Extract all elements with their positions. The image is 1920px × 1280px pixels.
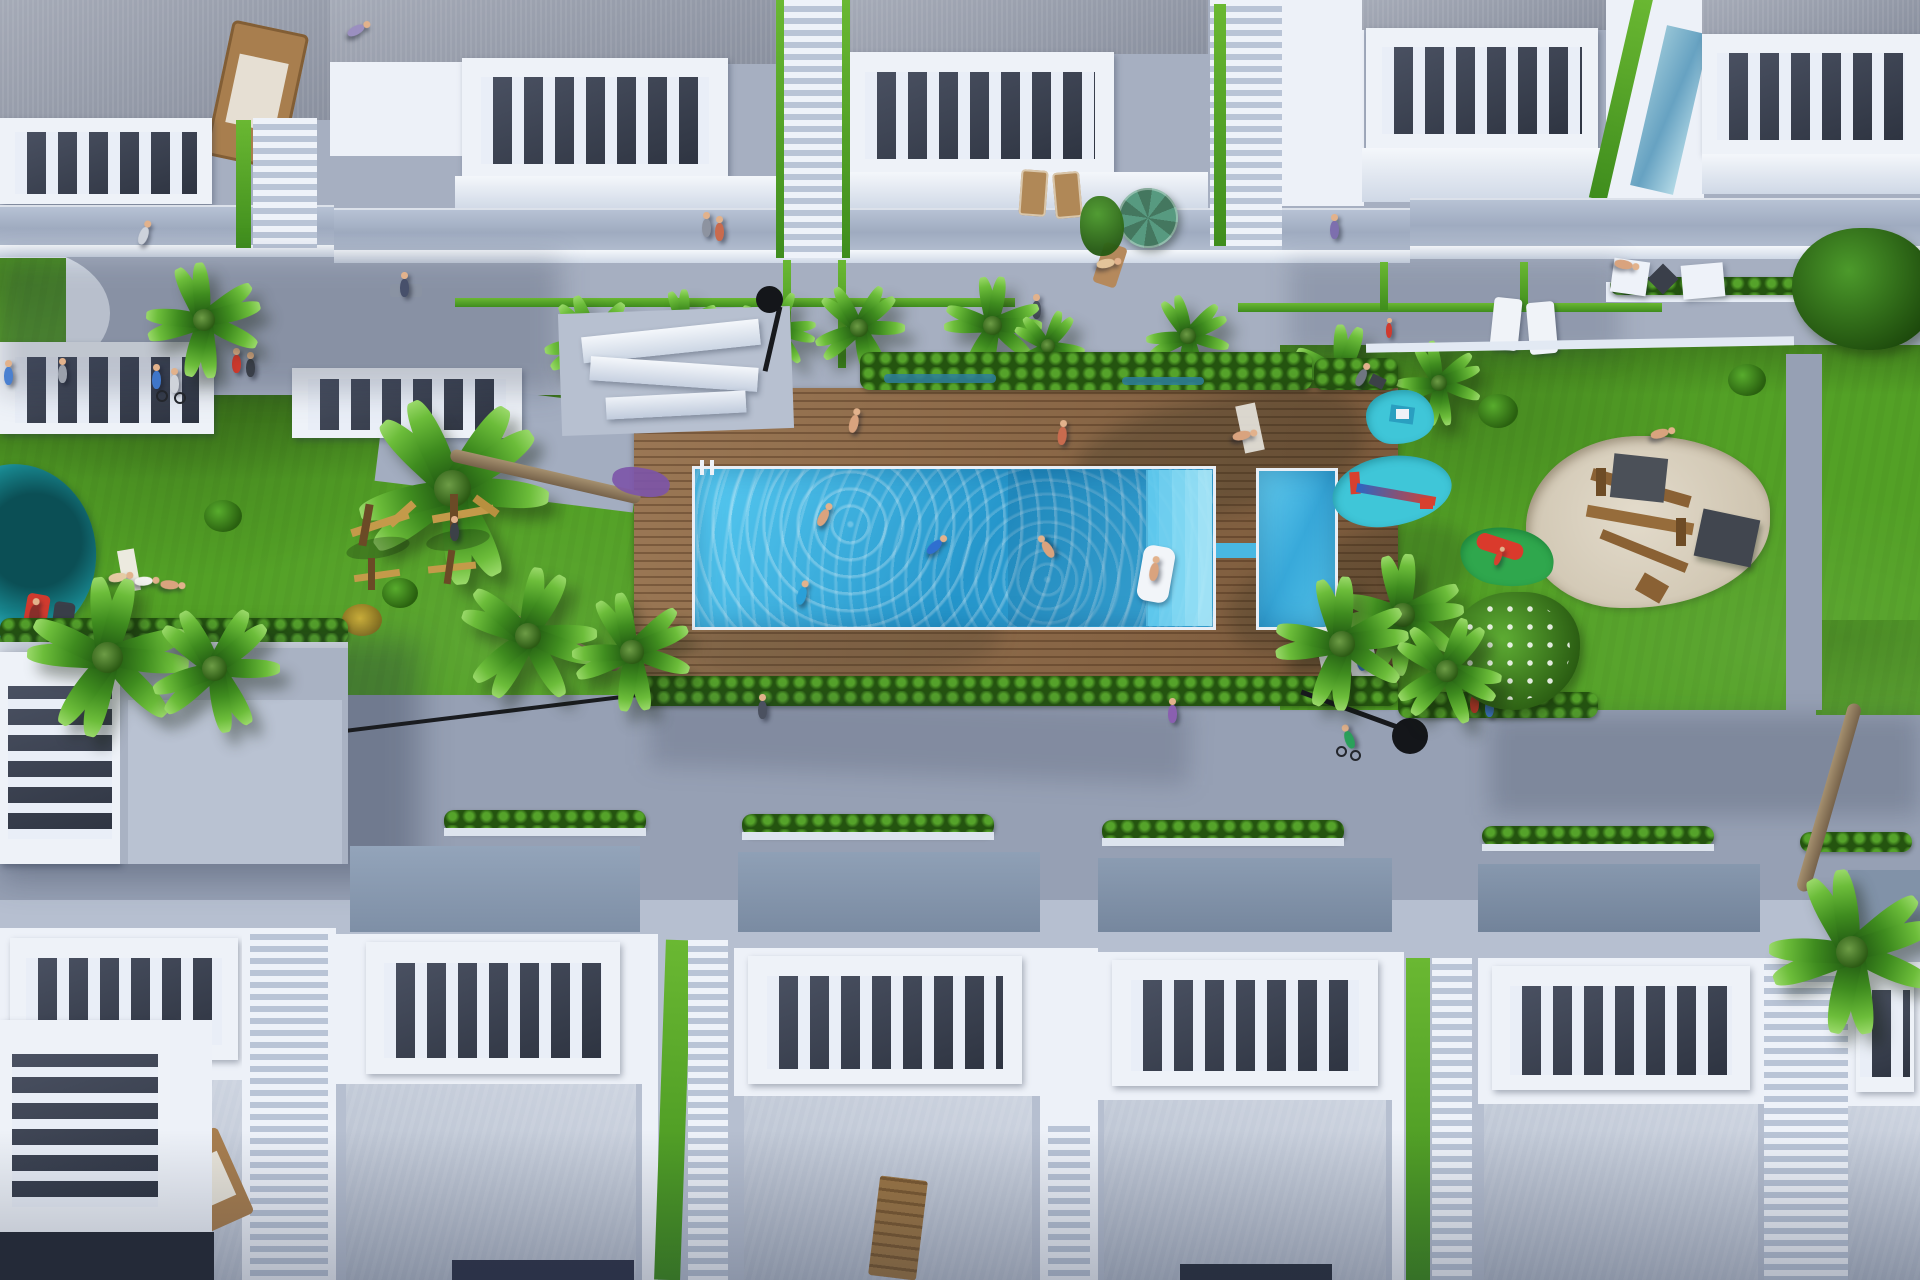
- person-on-float-body: [1148, 562, 1160, 582]
- patio-glass-2: [738, 852, 1040, 932]
- terrace-d: [846, 52, 1114, 174]
- house-2-terrace-slats: [384, 963, 602, 1058]
- person-lawn-edge-2-body: [58, 365, 67, 384]
- patio-glass-1: [350, 846, 640, 932]
- lounger-walkway-1: [1018, 169, 1048, 217]
- palm-road-left-2: [152, 606, 277, 731]
- person-walkway-3-body: [715, 223, 724, 242]
- aerial-residential-render: [0, 0, 1920, 1280]
- planter-wall-5: [1482, 844, 1714, 851]
- person-road-2-body: [1168, 705, 1177, 724]
- person-deck-walk-head: [1060, 420, 1067, 428]
- person-on-bench-head: [401, 272, 408, 279]
- person-deck-2-body: [847, 414, 860, 434]
- person-under-umbrella-body: [1095, 257, 1115, 269]
- bush-sand-edge: [1478, 394, 1518, 428]
- planter-wall-2: [444, 828, 646, 836]
- stair-cd-green-l: [776, 0, 784, 258]
- person-sand-lying-body: [1649, 427, 1669, 440]
- roof-f: [1362, 0, 1608, 30]
- path-right: [1786, 354, 1822, 710]
- person-walkway-4-head: [1331, 214, 1338, 221]
- planter-wall-3: [742, 832, 994, 840]
- person-on-float-head: [1152, 556, 1160, 564]
- stair-e-green: [1214, 4, 1226, 246]
- person-on-bench-body: [400, 279, 409, 298]
- terrace-h: [1702, 34, 1920, 154]
- person-walkway-2-body: [702, 219, 711, 238]
- person-under-umbrella-head: [1114, 258, 1122, 266]
- person-on-bench: [398, 272, 411, 298]
- fascia-h: [1702, 154, 1920, 194]
- person-deck-walk-body: [1057, 426, 1068, 446]
- terrace-h-slats: [1717, 53, 1905, 139]
- person-at-gym-body: [450, 523, 459, 542]
- pool-ladder-2: [710, 460, 714, 475]
- stair-cd-green-r: [842, 0, 850, 258]
- person-bike-2-body: [170, 375, 179, 394]
- terrace-a1: [0, 118, 212, 204]
- wall-f: [1282, 0, 1364, 206]
- palm-road-right-2-crown: [1436, 660, 1457, 681]
- roof-d: [846, 0, 1208, 54]
- person-deck-walk: [1055, 419, 1071, 446]
- palm-road-right-1-crown: [1329, 631, 1355, 657]
- person-deck-2-head: [853, 408, 861, 416]
- person-on-cubes-head: [1632, 263, 1640, 271]
- ivy-plant: [1080, 196, 1124, 256]
- plaza-shadow-left: [0, 258, 560, 393]
- lamp-plaza-head: [756, 286, 783, 313]
- terrace-c: [462, 58, 728, 178]
- person-road-1-head: [759, 694, 766, 701]
- planter-wall-4: [1102, 838, 1344, 846]
- page: { "canvas": {"w": 1920, "h": 1280}, "pal…: [0, 0, 1920, 1280]
- flowers-yellow: [342, 604, 382, 636]
- slab-c: [330, 62, 464, 156]
- bush-lawn-2: [382, 578, 418, 608]
- pool-dark-overlay: [1008, 470, 1148, 626]
- person-walkway-2-head: [703, 212, 710, 219]
- swimmer-4-head: [801, 580, 809, 589]
- pool-ladder-1: [700, 460, 704, 475]
- person-walkway-2: [700, 212, 713, 238]
- planter-hedge-5: [1482, 826, 1714, 846]
- palm-road-left-1-crown: [92, 642, 123, 673]
- terrace-a1-slats: [15, 132, 197, 194]
- fascia-c: [455, 176, 782, 210]
- bush-lawn-1: [204, 500, 242, 532]
- splash-toy-seat: [1396, 409, 1409, 419]
- person-walkway-3-head: [716, 216, 723, 223]
- palm-corner-br-crown: [1836, 936, 1868, 968]
- house-2-terrace: [366, 942, 620, 1074]
- stair-a-green: [236, 120, 251, 248]
- stair-a: [253, 118, 317, 248]
- hedge-deck-top: [860, 352, 1312, 390]
- pool-step-5: [1198, 470, 1212, 626]
- terrace-c-slats: [481, 77, 710, 163]
- roof-h: [1702, 0, 1920, 36]
- person-child-red-head: [1387, 318, 1392, 323]
- pool-step-4: [1185, 470, 1198, 626]
- person-road-2: [1166, 698, 1179, 724]
- swimmer-4-body: [795, 586, 809, 606]
- person-lawn-edge-2: [56, 358, 69, 384]
- fascia-f: [1362, 148, 1608, 202]
- curb-v-3: [1380, 262, 1388, 310]
- person-walkway-4: [1328, 214, 1341, 240]
- palm-road-right-1: [1278, 580, 1406, 708]
- bike-wheel-2: [174, 392, 186, 404]
- person-road-1: [756, 694, 769, 720]
- house-5-terrace: [1492, 966, 1750, 1090]
- house-4-terrace-slats: [1131, 980, 1360, 1071]
- bush-right-1: [1728, 364, 1766, 396]
- palm-lawn-topleft: [148, 264, 260, 376]
- cube-seat-2: [1681, 262, 1726, 300]
- person-lawn-edge-1-body: [4, 367, 13, 386]
- person-sand-lying-head: [1668, 427, 1676, 435]
- person-at-gym: [448, 516, 461, 542]
- play-post-2: [1676, 518, 1686, 546]
- curb-h-right: [1238, 303, 1662, 312]
- roof-c: [330, 0, 782, 64]
- palm-plaza-5-crown: [983, 316, 1002, 335]
- person-road-2-head: [1169, 698, 1176, 705]
- palm-road-left-2-crown: [202, 656, 227, 681]
- pool-connector: [1216, 543, 1258, 558]
- vignette-bottom: [0, 1130, 1920, 1280]
- play-panel: [1610, 453, 1668, 502]
- person-lawn-edge-2-head: [59, 358, 66, 365]
- gym-bar-3b: [368, 558, 375, 590]
- play-post-1: [1596, 468, 1606, 496]
- bike-wheel-3: [1336, 746, 1347, 757]
- terrace-d-slats: [865, 72, 1096, 160]
- palm-deck-left-2-crown: [620, 640, 643, 663]
- lounger-walkway-2: [1052, 171, 1083, 219]
- seesaw-end: [1420, 498, 1433, 509]
- hedge-water-2: [1122, 377, 1204, 385]
- bike-wheel-4: [1350, 750, 1361, 761]
- pool-step-3: [1172, 470, 1185, 626]
- person-road-1-body: [758, 701, 767, 720]
- person-on-cubes-body: [1613, 258, 1633, 270]
- person-at-gym-head: [451, 516, 458, 523]
- umbrella: [1118, 188, 1178, 248]
- terrace-f: [1366, 28, 1598, 148]
- lawn-corner-br: [1816, 620, 1920, 715]
- palm-deck-left-2: [574, 594, 690, 710]
- stair-cd: [784, 0, 842, 258]
- person-deck-lying-body: [1231, 429, 1251, 442]
- bike-wheel-1: [156, 390, 168, 402]
- person-walkway-3: [713, 216, 726, 242]
- house-3-terrace: [748, 956, 1022, 1084]
- person-walkway-4-body: [1330, 221, 1339, 240]
- house-4-terrace: [1112, 960, 1378, 1086]
- terrace-f-slats: [1382, 47, 1582, 133]
- person-lawn-edge-1-head: [5, 360, 12, 367]
- palm-plaza-7-crown: [1180, 328, 1196, 344]
- patio-glass-3: [1098, 858, 1392, 932]
- patio-glass-4: [1478, 864, 1760, 932]
- house-5-terrace-slats: [1510, 986, 1732, 1075]
- palm-plaza-4-crown: [850, 319, 868, 337]
- person-lawn-edge-1: [2, 360, 15, 386]
- person-deck-lying-head: [1250, 429, 1258, 437]
- hedge-water-1: [884, 374, 996, 383]
- curb-h-main: [455, 298, 1015, 307]
- palm-road-right-2: [1394, 618, 1500, 724]
- house-3-terrace-slats: [767, 976, 1003, 1068]
- palm-corner-br: [1772, 872, 1920, 1032]
